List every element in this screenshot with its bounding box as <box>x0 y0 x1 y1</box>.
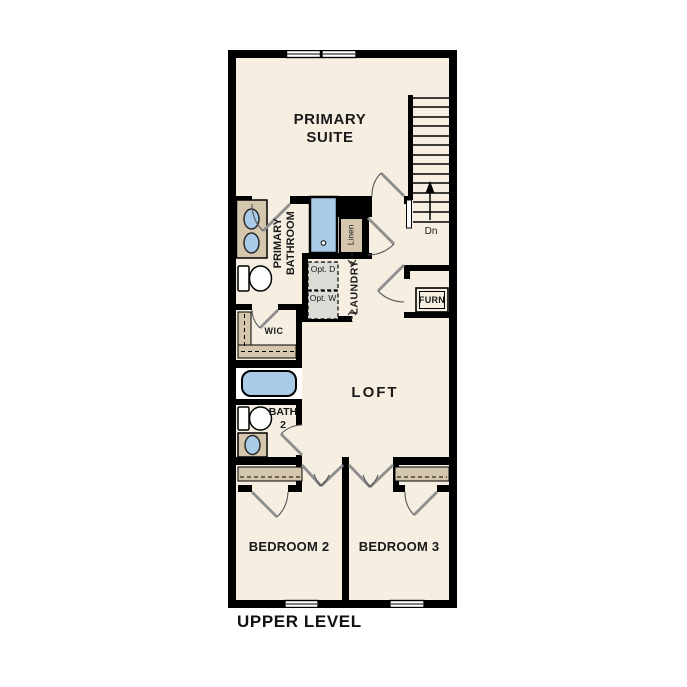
sink-icon <box>244 209 259 229</box>
primary-bath-toilet <box>238 266 272 291</box>
top-window-right <box>322 51 356 58</box>
level-title: UPPER LEVEL <box>237 612 362 632</box>
furnace-unit <box>416 288 448 312</box>
bath2-toilet <box>238 407 272 430</box>
optional-dryer-box <box>308 262 338 290</box>
bedroom2-window <box>285 601 318 608</box>
floor-plan: PRIMARY SUITE PRIMARY BATHROOM Linen LAU… <box>228 50 457 608</box>
shower-drain-icon <box>321 241 326 246</box>
sink-icon <box>244 233 259 253</box>
sink-icon <box>245 436 260 455</box>
bath2-vanity <box>238 433 267 457</box>
floor-plan-graphics <box>228 50 457 608</box>
optional-washer-box <box>308 291 338 319</box>
bedroom2-closet-shelf <box>238 467 302 481</box>
bedroom3-closet-shelf <box>395 467 449 481</box>
shower <box>310 197 337 253</box>
bathtub <box>236 368 302 399</box>
stair-railing <box>407 200 412 228</box>
linen-closet <box>340 218 363 253</box>
top-window-left <box>287 51 321 58</box>
bedroom3-window <box>390 601 424 608</box>
